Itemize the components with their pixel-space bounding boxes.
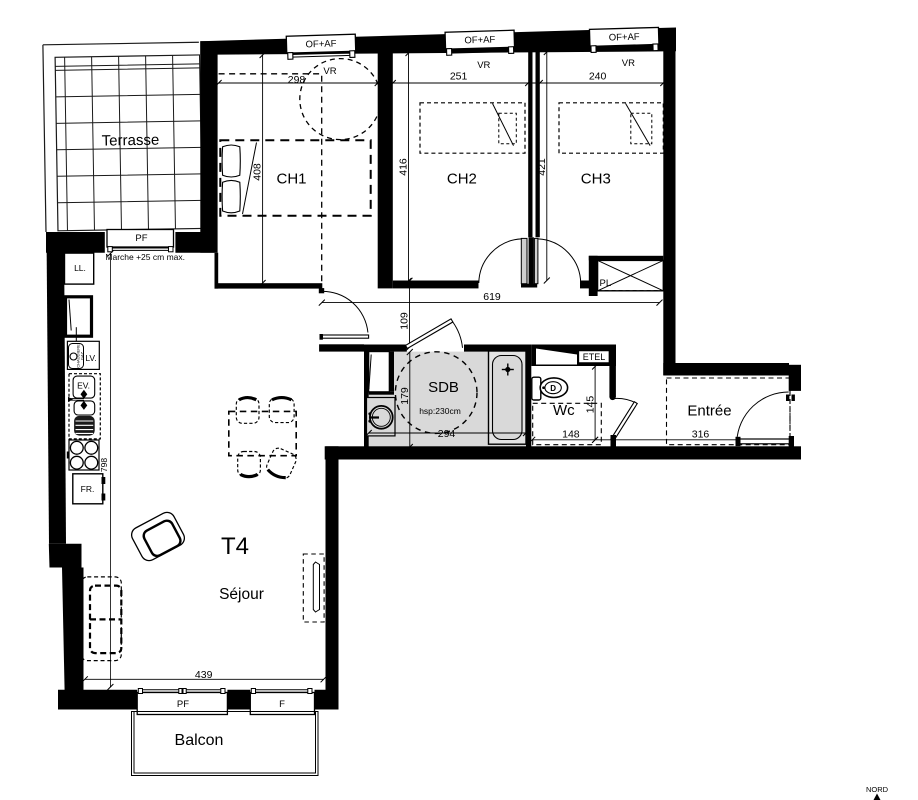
svg-text:VR: VR xyxy=(622,58,635,69)
svg-text:EV.: EV. xyxy=(77,380,90,390)
svg-text:OF+AF: OF+AF xyxy=(464,34,495,46)
svg-text:421: 421 xyxy=(536,158,548,176)
svg-text:LL.: LL. xyxy=(74,263,86,273)
svg-text:SDB: SDB xyxy=(428,379,459,396)
svg-text:Marche +25 cm max.: Marche +25 cm max. xyxy=(105,252,185,262)
svg-text:VR: VR xyxy=(477,60,490,71)
svg-text:VR: VR xyxy=(323,66,336,77)
svg-text:109: 109 xyxy=(399,312,411,330)
svg-text:D: D xyxy=(550,384,556,393)
svg-text:F: F xyxy=(279,699,285,710)
svg-text:408: 408 xyxy=(252,163,264,181)
svg-text:251: 251 xyxy=(450,71,468,83)
svg-text:179: 179 xyxy=(399,387,411,405)
svg-text:OF+AF: OF+AF xyxy=(305,38,336,50)
svg-text:GAZ: GAZ xyxy=(80,351,85,360)
svg-text:Wc: Wc xyxy=(553,402,575,419)
svg-text:439: 439 xyxy=(195,669,213,681)
svg-text:619: 619 xyxy=(483,291,501,303)
svg-text:CH3: CH3 xyxy=(581,171,611,188)
svg-text:Entrée: Entrée xyxy=(687,403,731,420)
svg-text:316: 316 xyxy=(692,429,710,441)
svg-text:Séjour: Séjour xyxy=(219,586,264,603)
svg-text:NORD: NORD xyxy=(866,785,889,794)
svg-text:Terrasse: Terrasse xyxy=(102,132,160,150)
svg-text:LV.: LV. xyxy=(85,353,96,363)
svg-text:298: 298 xyxy=(288,74,306,86)
svg-text:T4: T4 xyxy=(221,533,249,560)
svg-text:148: 148 xyxy=(562,429,580,441)
svg-text:PF: PF xyxy=(135,233,147,244)
svg-text:240: 240 xyxy=(589,71,607,83)
svg-text:798: 798 xyxy=(99,458,109,472)
svg-text:OF+AF: OF+AF xyxy=(609,32,640,44)
svg-text:PL: PL xyxy=(600,278,612,289)
svg-text:416: 416 xyxy=(398,158,410,176)
svg-text:CH2: CH2 xyxy=(447,171,477,188)
svg-text:ETEL: ETEL xyxy=(583,352,606,362)
svg-text:294: 294 xyxy=(438,428,456,440)
svg-text:145: 145 xyxy=(584,396,596,414)
svg-text:PF: PF xyxy=(177,699,189,710)
svg-text:Balcon: Balcon xyxy=(175,732,224,749)
svg-text:CH1: CH1 xyxy=(276,171,306,188)
svg-text:FR.: FR. xyxy=(81,484,95,494)
svg-text:hsp:230cm: hsp:230cm xyxy=(419,406,461,416)
